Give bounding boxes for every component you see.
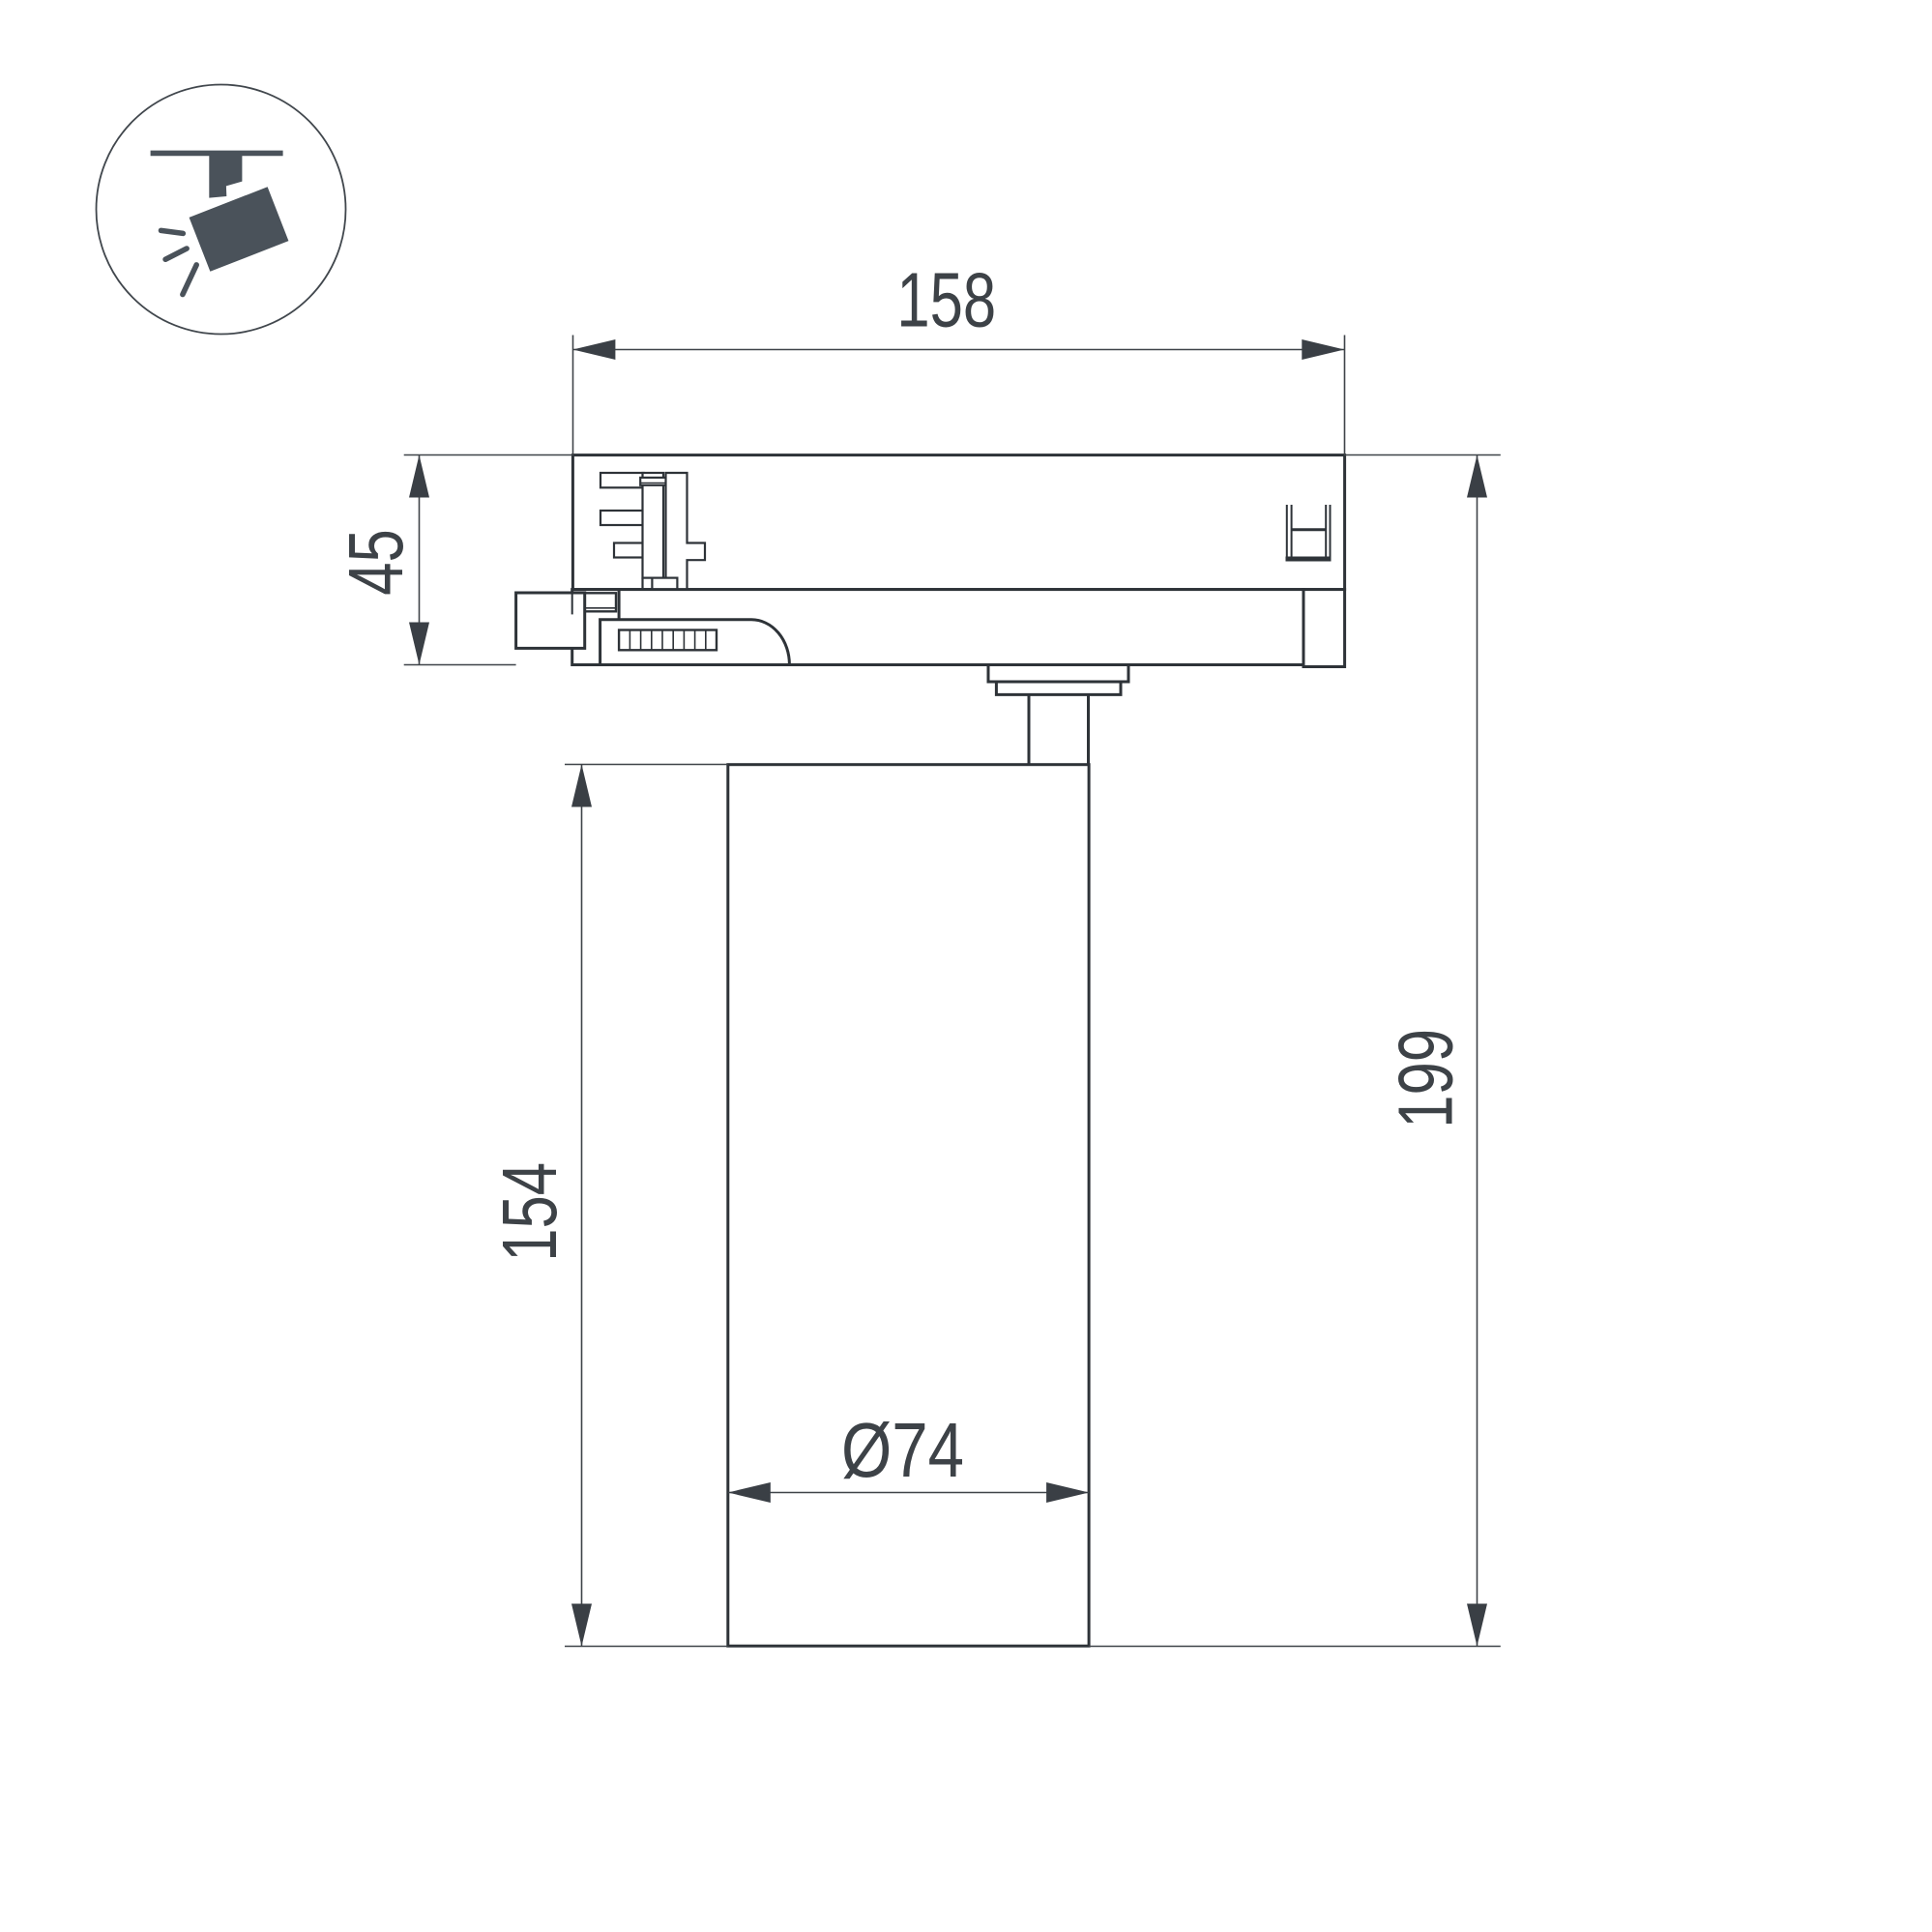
svg-text:154: 154: [486, 1162, 573, 1262]
svg-text:158: 158: [896, 257, 996, 344]
svg-text:45: 45: [333, 529, 420, 596]
svg-text:Ø74: Ø74: [841, 1406, 964, 1493]
svg-text:199: 199: [1383, 1029, 1470, 1128]
